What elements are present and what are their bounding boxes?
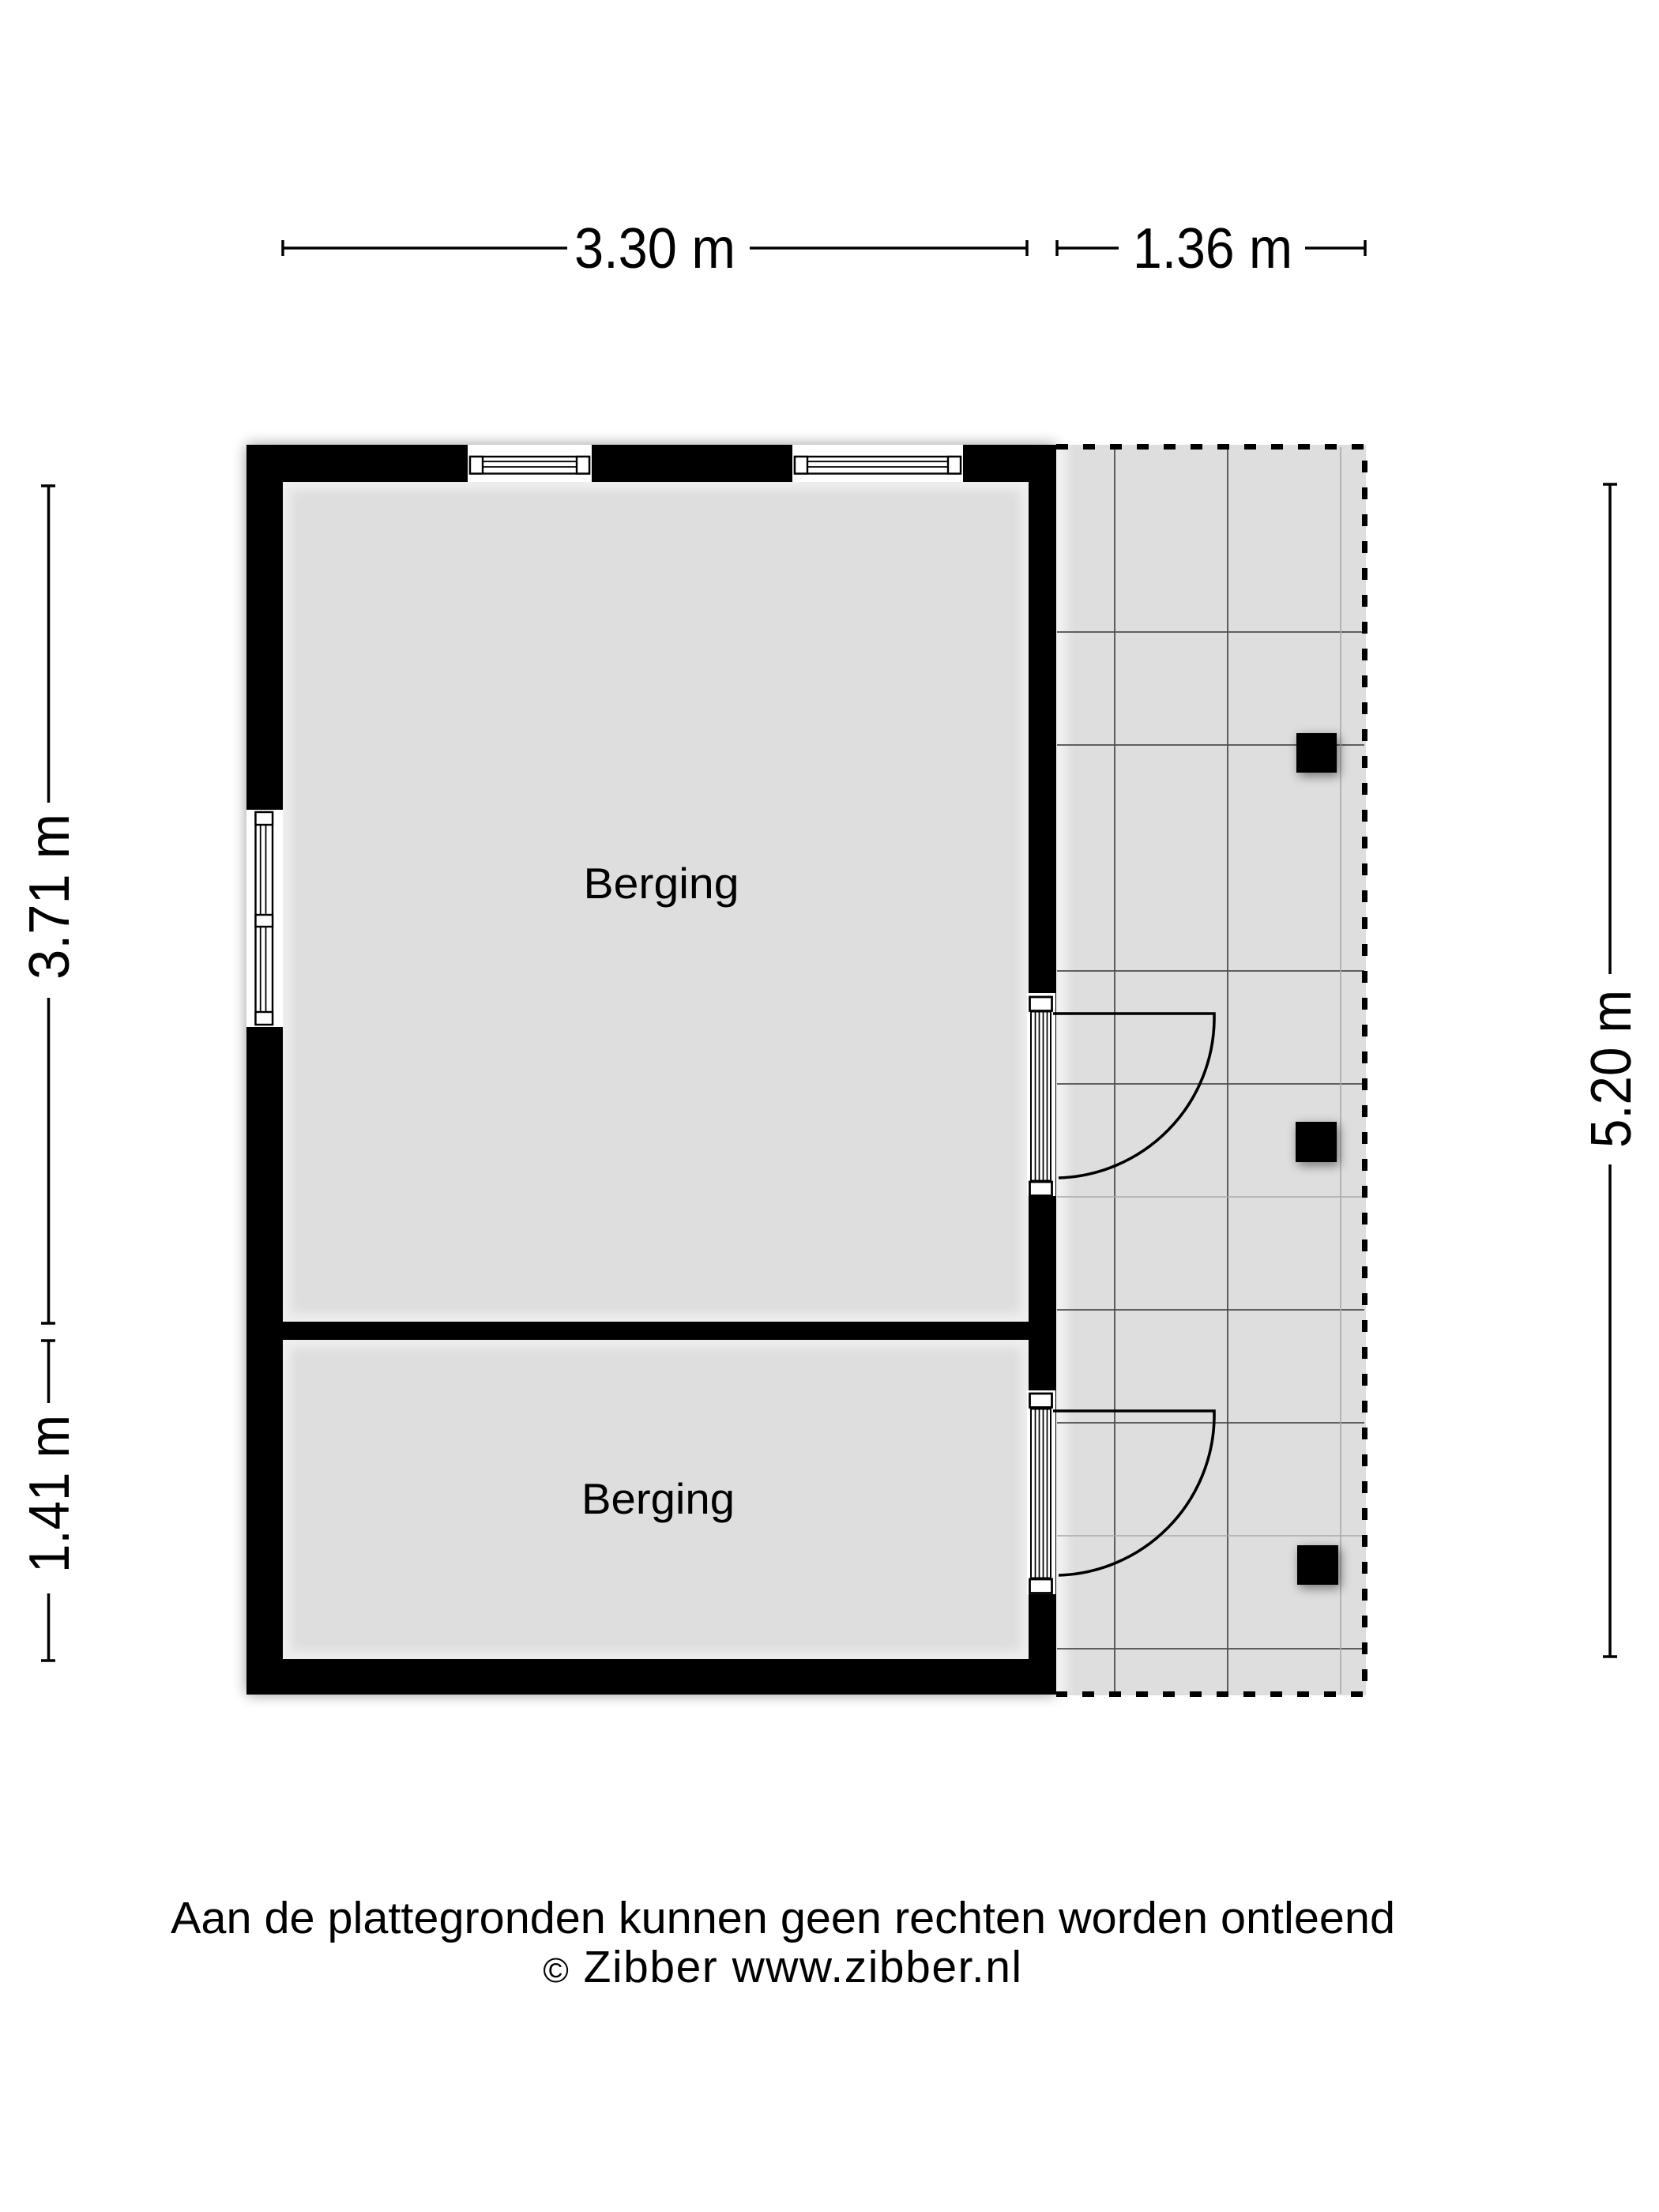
svg-text:Berging: Berging	[584, 859, 739, 908]
svg-text:1.41 m: 1.41 m	[18, 1415, 81, 1573]
svg-text:1.36 m: 1.36 m	[1133, 217, 1292, 280]
svg-text:Aan de plattegronden kunnen ge: Aan de plattegronden kunnen geen rechten…	[171, 1893, 1395, 1943]
svg-text:5.20 m: 5.20 m	[1580, 990, 1643, 1148]
svg-text:Berging: Berging	[581, 1474, 735, 1523]
svg-text:3.71 m: 3.71 m	[18, 814, 81, 980]
svg-text:3.30 m: 3.30 m	[574, 217, 735, 280]
svg-text:© Zibber www.zibber.nl: © Zibber www.zibber.nl	[543, 1942, 1022, 1992]
